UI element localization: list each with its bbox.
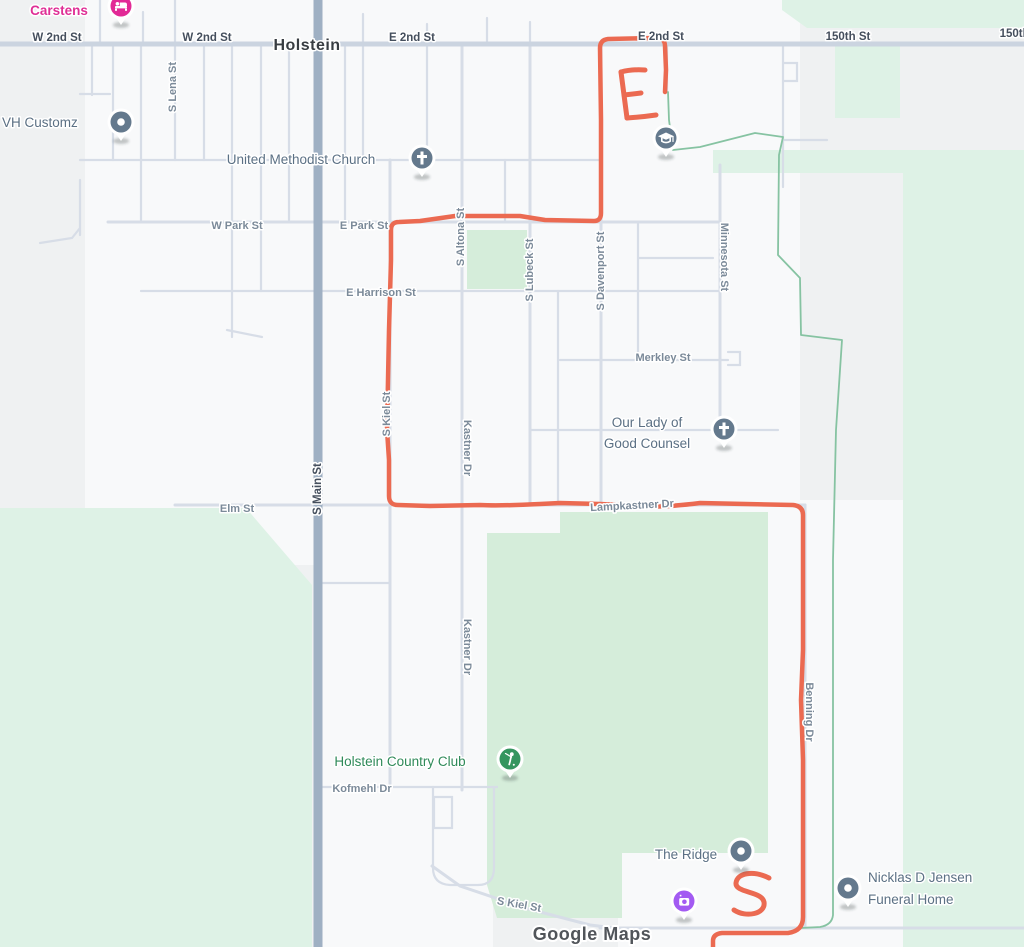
poi-label-vh-customz[interactable]: VH Customz [2, 115, 78, 130]
street-label-s-main: S Main St [312, 463, 324, 515]
poi-label-funeral-2[interactable]: Funeral Home [868, 892, 954, 907]
dot-icon [117, 118, 125, 126]
poi-label-funeral-1[interactable]: Nicklas D Jensen [868, 870, 972, 885]
google-maps-watermark: Google Maps [533, 924, 652, 944]
street-label-s-kiel-upper: S Kiel St [381, 391, 393, 436]
street-label-e2nd-1: E 2nd St [389, 32, 435, 44]
street-label-e-harrison: E Harrison St [346, 287, 416, 299]
poi-label-the-ridge[interactable]: The Ridge [655, 847, 717, 862]
street-label-s-lubeck: S Lubeck St [524, 238, 536, 301]
street-label-s-altona: S Altona St [455, 208, 467, 267]
dot-icon [737, 847, 745, 855]
street-label-e-park: E Park St [340, 220, 389, 232]
street-label-merkley: Merkley St [635, 352, 690, 364]
park-square [467, 230, 527, 289]
street-label-w-park: W Park St [211, 220, 263, 232]
street-label-e2nd-2: E 2nd St [638, 31, 684, 43]
green-top-right [782, 0, 1024, 28]
street-label-150th-2: 150th St [1000, 28, 1024, 40]
street-label-w2nd-1: W 2nd St [32, 32, 81, 44]
poi-label-our-lady-1[interactable]: Our Lady of [612, 415, 683, 430]
dot-icon [844, 884, 852, 892]
poi-label-country-club[interactable]: Holstein Country Club [334, 754, 465, 769]
green-right-upper [835, 44, 900, 118]
poi-label-our-lady-2[interactable]: Good Counsel [604, 436, 690, 451]
street-label-kofmehl: Kofmehl Dr [332, 783, 392, 795]
street-label-benning: Benning Dr [803, 682, 815, 742]
street-label-elm: Elm St [220, 503, 255, 515]
street-label-kastner-1: Kastner Dr [461, 420, 473, 477]
street-label-150th-1: 150th St [826, 31, 871, 43]
street-label-s-davenport: S Davenport St [595, 231, 607, 310]
map-canvas[interactable]: W 2nd St W 2nd St E 2nd St E 2nd St 150t… [0, 0, 1024, 947]
street-label-kastner-2: Kastner Dr [461, 619, 473, 676]
street-label-w2nd-2: W 2nd St [182, 32, 231, 44]
green-bottom-left [0, 508, 312, 947]
street-label-minnesota: Minnesota St [718, 223, 730, 292]
poi-label-carstens[interactable]: Carstens [30, 3, 88, 18]
town-label: Holstein [273, 37, 340, 54]
street-label-s-lena: S Lena St [167, 62, 179, 112]
poi-label-united-methodist[interactable]: United Methodist Church [227, 152, 376, 167]
